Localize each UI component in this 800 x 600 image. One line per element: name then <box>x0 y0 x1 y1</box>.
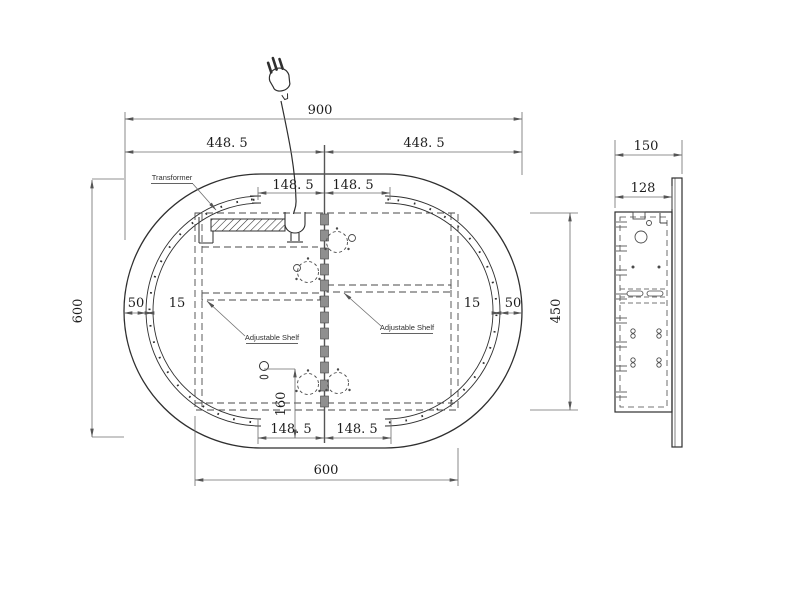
dim-led-left: 15 <box>169 296 186 311</box>
dim-bottom-inner-right: 148. 5 <box>336 422 377 437</box>
adjustable-shelf-left-label: Adjustable Shelf <box>245 333 300 342</box>
power-cord <box>281 101 296 214</box>
transformer-assembly <box>199 212 305 243</box>
adjustable-shelf-right-label: Adjustable Shelf <box>380 323 435 332</box>
dim-border-left: 50 <box>128 296 145 311</box>
shelf-right-leader <box>344 293 381 326</box>
dim-border-right: 50 <box>505 296 522 311</box>
cam-lock-symbol <box>260 362 269 379</box>
dim-width-right: 448. 5 <box>403 136 444 151</box>
shelf-right-hidden <box>327 285 451 292</box>
transformer-label: Transformer <box>152 173 193 182</box>
led-dots-left <box>150 200 262 423</box>
led-dots-right <box>385 200 497 423</box>
dim-top-inner-right: 148. 5 <box>332 178 373 193</box>
transformer-box <box>211 219 285 231</box>
dim-hinge-offset: 160 <box>274 392 289 417</box>
dim-cabinet-height: 450 <box>549 299 564 324</box>
power-socket-cup <box>285 212 305 242</box>
dim-width-total: 900 <box>308 103 333 118</box>
dim-bottom-inner-left: 148. 5 <box>270 422 311 437</box>
dim-top-inner-left: 148. 5 <box>272 178 313 193</box>
dim-bottom-width: 600 <box>314 463 339 478</box>
dim-depth-total: 150 <box>634 139 659 154</box>
dim-led-right: 15 <box>464 296 481 311</box>
mirror-cabinet-drawing: 900 448. 5 448. 5 148. 5 148. 5 148. 5 1… <box>0 0 800 600</box>
side-hidden-lines <box>620 217 667 407</box>
callouts: Transformer Adjustable Shelf Adjustable … <box>151 173 435 344</box>
shelf-left-leader <box>207 301 245 336</box>
side-hinge-marks <box>616 222 627 397</box>
dim-cabinet-depth: 128 <box>631 181 656 196</box>
dim-width-left: 448. 5 <box>206 136 247 151</box>
center-seam <box>321 145 329 443</box>
side-fittings <box>631 212 667 367</box>
transformer-leader <box>193 184 216 210</box>
shelf-left-hidden <box>202 293 320 300</box>
technical-drawing: 900 448. 5 448. 5 148. 5 148. 5 148. 5 1… <box>0 0 800 600</box>
mirror-panel <box>672 178 682 447</box>
front-view: 900 448. 5 448. 5 148. 5 148. 5 148. 5 1… <box>71 55 578 486</box>
dim-height-total: 600 <box>71 299 86 324</box>
side-view: 150 128 <box>615 139 682 447</box>
